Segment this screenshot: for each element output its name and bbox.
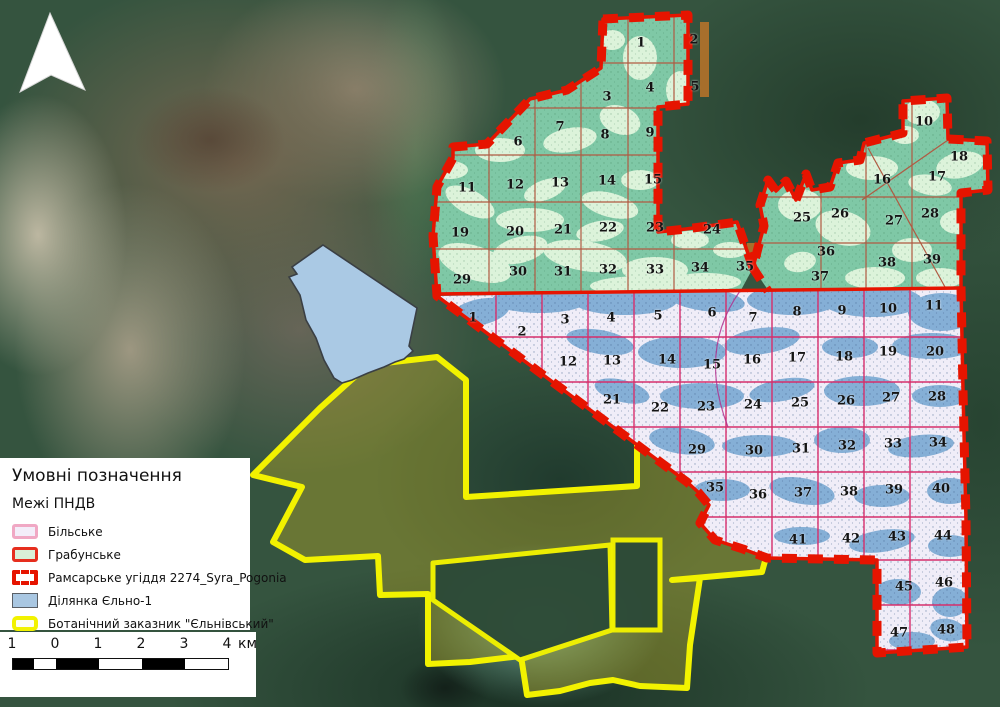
legend-item-label: Ділянка Єльно-1 <box>48 594 152 608</box>
legend-item-ramsar: Рамсарське угіддя 2274_Syra_Pogonia <box>12 566 250 589</box>
legend-item-hrabunske: Грабунське <box>12 543 250 566</box>
scalebar-unit: км <box>238 636 257 652</box>
legend-panel: Умовні позначення Межі ПНДВ БільськеГраб… <box>0 458 250 630</box>
legend-item-label: Грабунське <box>48 548 121 562</box>
ramsar-swatch-icon <box>12 570 38 585</box>
scalebar-label-4: 3 <box>180 636 189 652</box>
yelno-swatch-icon <box>12 593 38 608</box>
legend-item-yelno: Ділянка Єльно-1 <box>12 589 250 612</box>
legend-item-label: Більське <box>48 525 103 539</box>
legend-item-bilske: Більське <box>12 520 250 543</box>
map-canvas: 1234567891011121314151617181920212223242… <box>0 0 1000 707</box>
scalebar-label-2: 1 <box>94 636 103 652</box>
scalebar-label-5: 4 <box>223 636 232 652</box>
bilske-swatch-icon <box>12 524 38 539</box>
botanical-swatch-icon <box>12 616 38 631</box>
scalebar-label-3: 2 <box>137 636 146 652</box>
scalebar-panel: 101234 км <box>0 632 256 697</box>
scalebar-label-0: 1 <box>8 636 17 652</box>
brown-strip <box>700 22 709 97</box>
scalebar <box>12 658 229 670</box>
hrabunske-swatch-icon <box>12 547 38 562</box>
legend-item-label: Ботанічний заказник "Єльнівський" <box>48 617 274 631</box>
north-arrow-icon <box>20 13 85 92</box>
legend-title: Умовні позначення <box>12 466 250 486</box>
scalebar-label-1: 0 <box>51 636 60 652</box>
hrabunske-west-fill <box>430 10 760 300</box>
legend-item-label: Рамсарське угіддя 2274_Syra_Pogonia <box>48 571 287 585</box>
legend-subtitle: Межі ПНДВ <box>12 496 250 512</box>
